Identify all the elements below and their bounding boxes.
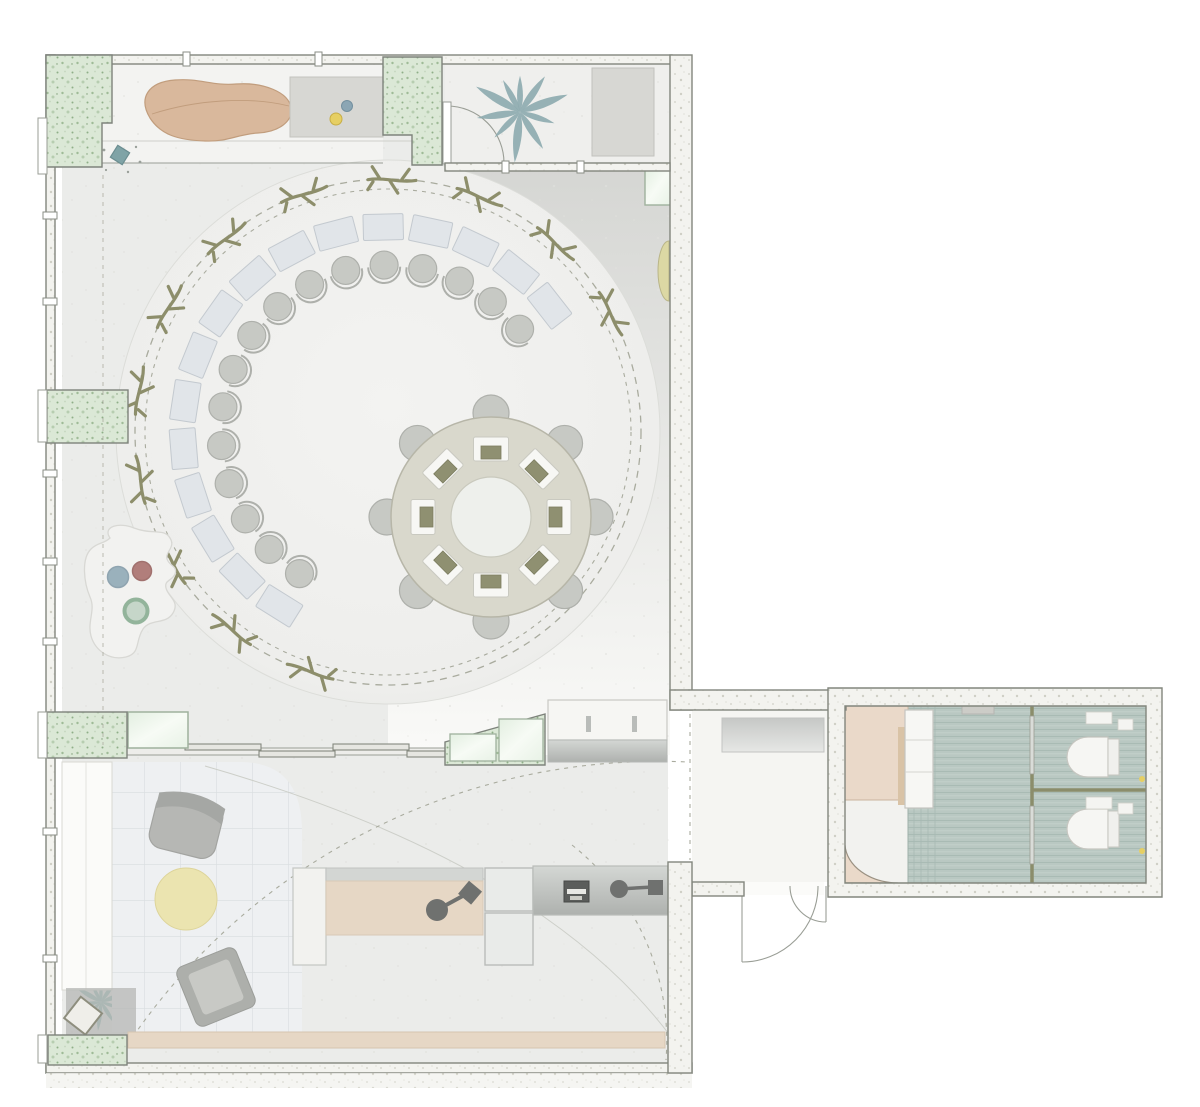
- perimeter-chair: [255, 535, 283, 563]
- workstation-equipment: [481, 575, 501, 588]
- table-center-hole: [451, 477, 531, 557]
- workstation: [474, 437, 509, 461]
- tall-cabinet: [905, 710, 933, 808]
- toilet-cistern: [1108, 739, 1119, 775]
- corridor-bottom-wall: [692, 882, 744, 896]
- door-knob: [1139, 776, 1145, 782]
- sliding-panel: [407, 751, 445, 757]
- alcove-table: [290, 77, 383, 137]
- top-window-wall: [46, 55, 672, 64]
- marble-pier-mid: [47, 390, 128, 443]
- perimeter-chair: [231, 505, 259, 533]
- doormat: [722, 718, 824, 752]
- perimeter-chair: [370, 251, 398, 279]
- marble-pier-corner: [46, 55, 112, 167]
- tap-post: [632, 716, 637, 732]
- wall-closet: [62, 762, 112, 990]
- floor-plan-page: [0, 0, 1200, 1107]
- bath-tiled-floor: [908, 706, 1146, 883]
- laptop: [564, 881, 589, 902]
- blue-stool: [342, 101, 353, 112]
- counter-rail: [326, 868, 483, 881]
- counter-base: [548, 740, 667, 762]
- toilet: [1067, 809, 1119, 849]
- toilet-bowl: [1067, 809, 1108, 849]
- perimeter-chair: [506, 315, 534, 343]
- perimeter-chair: [332, 256, 360, 284]
- yellow-stool: [330, 113, 342, 125]
- glass-panel-small: [450, 734, 496, 761]
- corridor-top-wall: [670, 690, 846, 710]
- bench-strip: [128, 1032, 665, 1048]
- steel-desk: [533, 866, 668, 915]
- toilet: [1067, 737, 1119, 777]
- green-ring-bowl: [125, 600, 148, 623]
- perimeter-chair: [209, 393, 237, 421]
- end-cabinet: [293, 868, 326, 965]
- organic-stone-sofa: [145, 80, 291, 141]
- marble-pier-lower: [47, 712, 127, 758]
- red-bowl: [133, 562, 152, 581]
- bottom-exterior-band: [46, 1073, 692, 1088]
- workstation: [474, 573, 509, 597]
- sliding-panel: [259, 751, 335, 757]
- workstation: [547, 500, 571, 535]
- storage-mat: [592, 68, 654, 156]
- yellow-pouf: [155, 868, 217, 930]
- workstation-equipment: [549, 507, 562, 527]
- perimeter-chair: [219, 355, 247, 383]
- workstation: [411, 500, 435, 535]
- shelf-box-upper: [485, 868, 533, 911]
- door-leaf: [443, 102, 451, 164]
- white-service-counter: [548, 700, 667, 740]
- sliding-panel: [185, 744, 261, 750]
- wood-worktop: [326, 881, 483, 935]
- marble-pier-bottom-corner: [48, 1035, 127, 1065]
- glass-panel-large: [499, 719, 543, 761]
- perimeter-desk: [169, 428, 198, 470]
- wall-glass-cabinet: [645, 168, 671, 205]
- blue-bowl: [108, 567, 129, 588]
- workstation-equipment: [481, 446, 501, 459]
- wall-box: [1118, 803, 1133, 814]
- floor-plan-drawing: [0, 0, 1200, 1107]
- perimeter-chair: [264, 293, 292, 321]
- toilet-cistern: [1108, 811, 1119, 847]
- plant-room-window-wall: [445, 163, 670, 171]
- wall-box: [1118, 719, 1133, 730]
- door-knob: [1139, 848, 1145, 854]
- wood-strip: [898, 727, 905, 805]
- perimeter-chair: [445, 267, 473, 295]
- central-round-table: [369, 395, 613, 639]
- bottom-wall: [46, 1063, 692, 1073]
- entry-door-gap: [744, 882, 824, 895]
- stall-door: [1030, 806, 1034, 864]
- perimeter-chair: [296, 271, 324, 299]
- perimeter-desk: [169, 379, 201, 422]
- entry-door-swing-large: [742, 886, 818, 962]
- shelf-box-lower: [485, 913, 533, 965]
- lounge-right-wall: [668, 862, 692, 1073]
- perimeter-chair: [215, 470, 243, 498]
- perimeter-desk: [363, 214, 404, 241]
- cistern-shelf: [1086, 712, 1112, 724]
- workstation-equipment: [420, 507, 433, 527]
- sliding-panel: [333, 744, 409, 750]
- toilet-bowl: [1067, 737, 1108, 777]
- cistern-shelf: [1086, 797, 1112, 809]
- stall-door: [1030, 716, 1034, 774]
- right-thick-wall: [670, 55, 692, 710]
- perimeter-chair: [208, 432, 236, 460]
- tap-post: [586, 716, 591, 732]
- glass-light-box: [128, 712, 188, 748]
- perimeter-chair: [409, 255, 437, 283]
- perimeter-chair: [286, 560, 314, 588]
- perimeter-chair: [478, 288, 506, 316]
- perimeter-chair: [238, 321, 266, 349]
